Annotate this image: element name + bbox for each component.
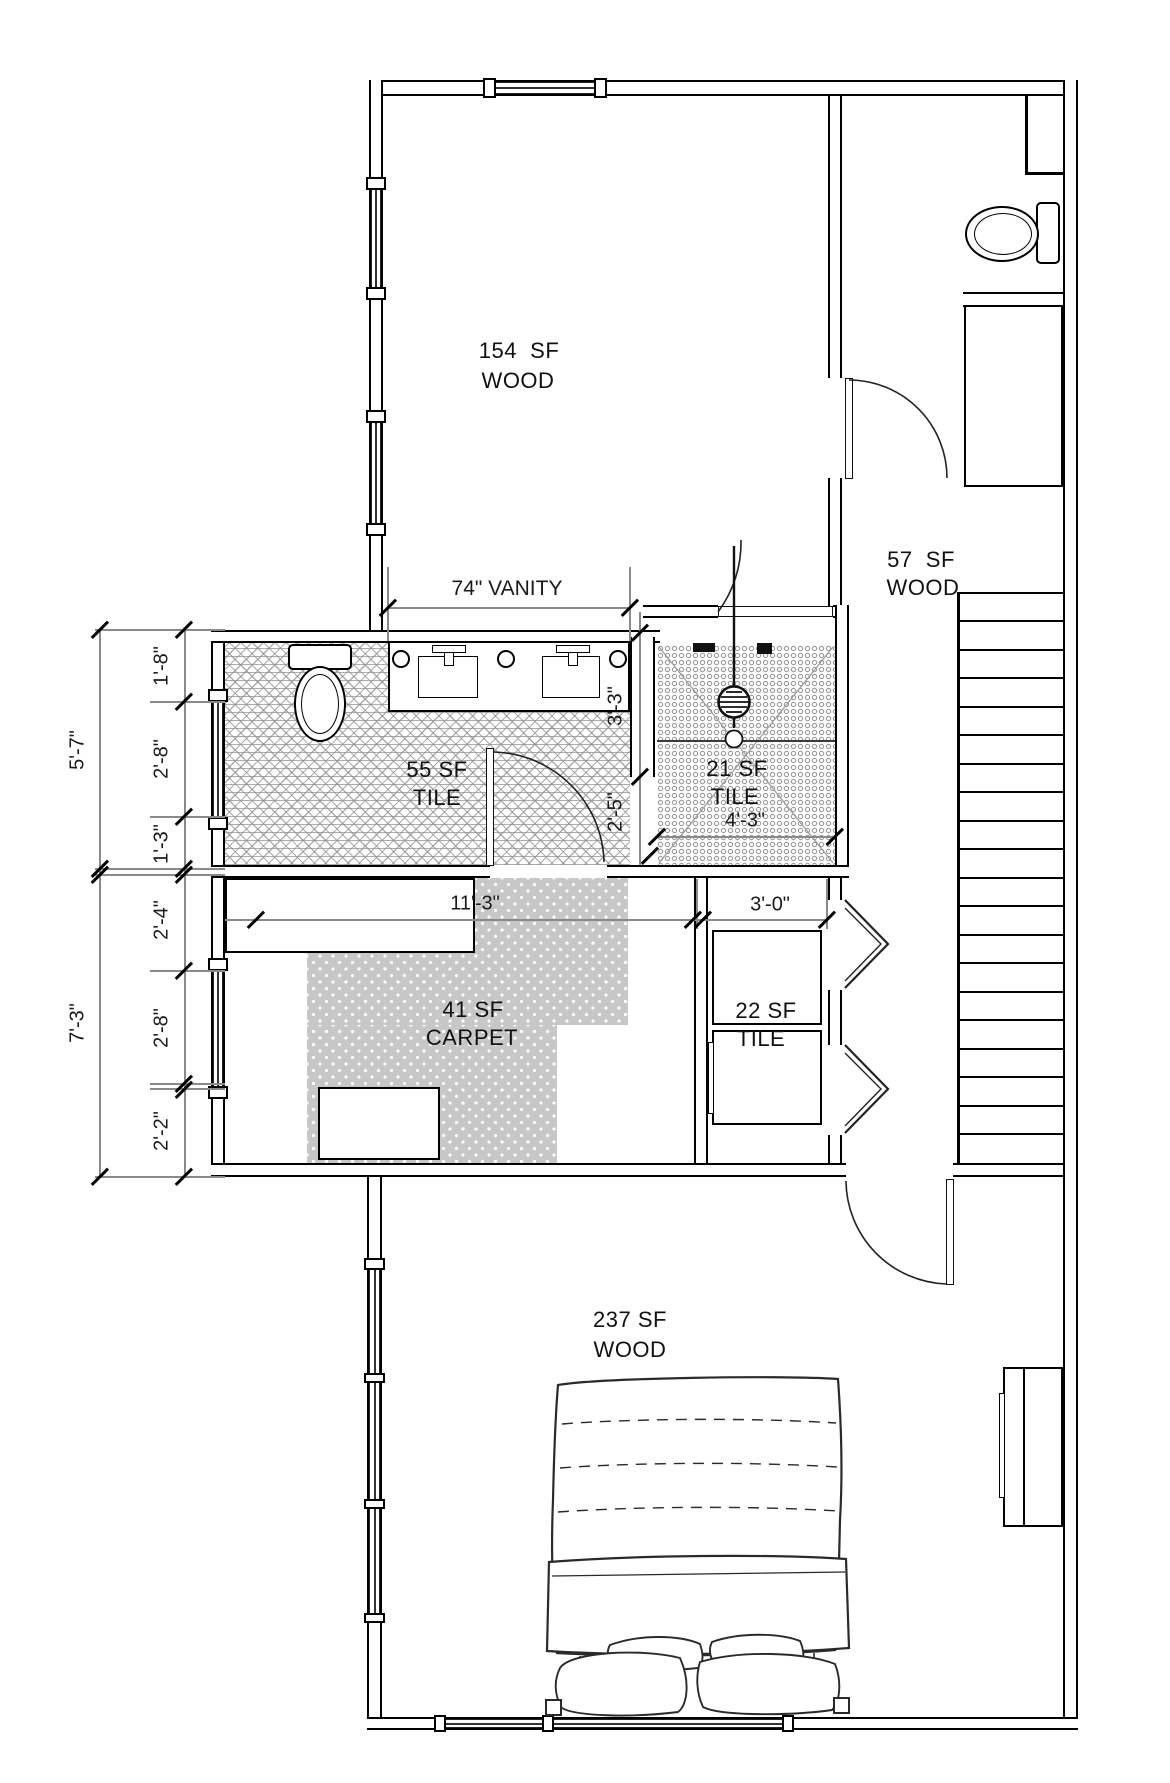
window-glass-line — [374, 1270, 376, 1373]
laundry-east-wall-a — [828, 878, 842, 900]
room-label-area: 55 SF — [406, 757, 467, 783]
bifold-door — [845, 1045, 888, 1133]
dimension-label: 7'-3" — [67, 1003, 90, 1043]
door-swing-arc — [849, 380, 947, 478]
bed-post — [834, 1698, 849, 1713]
stair-tread — [958, 820, 1063, 822]
faucet-handle — [497, 650, 515, 668]
window-sill — [364, 1373, 385, 1383]
window-sill — [208, 817, 228, 830]
window-sill — [366, 523, 386, 536]
door-swing-arc — [846, 1181, 946, 1284]
bed — [546, 1377, 849, 1715]
stair-tread — [958, 991, 1063, 993]
bathroom-south-wall-a — [211, 865, 490, 878]
window-sill — [434, 1715, 446, 1732]
room-label-floor: WOOD — [594, 1337, 667, 1363]
closet-shelf-lower — [318, 1087, 440, 1160]
sink-faucet-stub — [568, 652, 578, 666]
bifold-door — [845, 900, 888, 988]
sink-faucet-stub — [444, 652, 454, 666]
door-leaf-upper-closet — [845, 378, 853, 479]
laundry-east-wall-b — [828, 990, 842, 1045]
upper-room-divider-wall-a — [828, 96, 842, 378]
dimension-label: 2'-5" — [605, 792, 628, 832]
window-glass-line — [375, 190, 377, 287]
bed-duvet — [552, 1377, 841, 1655]
bed-pillow — [608, 1637, 703, 1670]
dresser — [1003, 1367, 1063, 1527]
bed-pillow — [697, 1654, 839, 1714]
stair-tread — [958, 649, 1063, 651]
stair-tread — [958, 677, 1063, 679]
stair-tread — [958, 905, 1063, 907]
window-sill — [364, 1613, 385, 1623]
extension-line — [95, 629, 225, 631]
window-glass-line — [553, 1723, 783, 1725]
bed-frame-side — [814, 1653, 815, 1702]
extension-line — [150, 970, 225, 972]
toilet-seat — [301, 674, 339, 734]
dimension-line — [388, 607, 630, 609]
stair-tread — [958, 1076, 1063, 1078]
bifold-door — [845, 908, 881, 981]
bathroom-east-wall — [630, 637, 655, 777]
window-sill — [366, 177, 386, 190]
window-glass-line — [374, 1509, 376, 1613]
dimension-label: 2'-8" — [151, 1008, 174, 1048]
stair-tread — [958, 1105, 1063, 1107]
shower-door-hardware — [757, 643, 772, 654]
dimension-line — [184, 630, 186, 1178]
upper-room-divider-wall-b — [828, 478, 842, 612]
stair-tread — [958, 734, 1063, 736]
extension-line — [150, 816, 225, 818]
stair-tread — [958, 1019, 1063, 1021]
window-glass-line — [375, 423, 377, 523]
dimension-line — [657, 836, 835, 838]
extension-line — [95, 868, 225, 870]
laundry-east-wall-c — [828, 1135, 842, 1163]
bed-fold-line — [558, 1507, 838, 1512]
faucet-handle — [609, 650, 627, 668]
upper-closet — [964, 305, 1063, 487]
faucet-handle — [392, 650, 410, 668]
dimension-label: 11'-3" — [450, 893, 499, 916]
dimension-line — [225, 919, 828, 921]
stair-tread — [958, 1048, 1063, 1050]
door-leaf-bedroom — [946, 1179, 954, 1285]
window-glass-line — [217, 702, 219, 817]
room-label-floor: CARPET — [426, 1025, 518, 1051]
room-label-floor: WOOD — [887, 575, 960, 601]
stair-tread — [958, 934, 1063, 936]
toilet-seat — [974, 213, 1032, 255]
window-sill — [366, 287, 386, 300]
room-label-floor: TILE — [413, 785, 461, 811]
bed-pillow — [556, 1653, 687, 1716]
laundry-cabinet-front — [708, 1042, 714, 1114]
stair-tread — [958, 706, 1063, 708]
chase-wall-horizontal — [1025, 172, 1063, 175]
stair-tread — [958, 1133, 1063, 1135]
dimension-label: 4'-3" — [725, 810, 765, 833]
dimension-label: 1'-3" — [151, 824, 174, 864]
extension-line — [95, 1176, 225, 1178]
dresser-divider — [1023, 1368, 1025, 1526]
window-glass-line — [495, 87, 595, 89]
floor-plan: 5'-7" 7'-3" 1'-8" 2'-8" 1'-3" 2'-4" 2'-8… — [0, 0, 1170, 1783]
window-sill — [483, 78, 496, 98]
hall-north-wall-a — [643, 605, 718, 618]
window-sill — [364, 1258, 385, 1270]
window-sill — [364, 1499, 385, 1509]
stair-tread — [958, 763, 1063, 765]
dimension-label: 1'-8" — [151, 646, 174, 686]
wing-south-wall-left — [211, 1163, 846, 1177]
room-label-area: 154 SF — [479, 338, 560, 364]
dimension-line — [639, 612, 641, 865]
door-swing-arc — [718, 540, 741, 612]
bathroom-north-wall — [211, 630, 660, 643]
bed-pillow — [710, 1635, 803, 1669]
stair-tread — [958, 592, 1063, 594]
dimension-label: 3'-0" — [750, 894, 790, 917]
window-sill — [782, 1715, 794, 1732]
room-label-floor: WOOD — [482, 368, 555, 394]
toilet-tank — [1036, 202, 1060, 264]
chase-wall-vertical — [1025, 96, 1028, 175]
window-glass-line — [217, 971, 219, 1086]
bed-fold-line — [560, 1463, 837, 1468]
window-glass-line — [374, 1383, 376, 1499]
room-label-area: 57 SF — [887, 547, 955, 573]
stair-tread — [958, 877, 1063, 879]
window-glass-line — [445, 1723, 543, 1725]
dresser-front — [999, 1393, 1005, 1498]
exterior-wall-right — [1063, 80, 1078, 1730]
bathroom-south-wall-b — [607, 865, 849, 878]
stair-tread — [958, 848, 1063, 850]
room-label-area: 22 SF — [735, 998, 796, 1024]
room-label-area: 41 SF — [442, 997, 503, 1023]
door-leaf-hall — [718, 606, 833, 617]
dimension-label: 5'-7" — [67, 730, 90, 770]
exterior-wall-left-upper — [369, 80, 383, 637]
bed-post — [546, 1700, 561, 1715]
bifold-door — [845, 1053, 881, 1126]
door-leaf-bathroom — [486, 748, 494, 866]
dimension-label: 74" VANITY — [452, 577, 563, 601]
window-sill — [366, 410, 386, 423]
exterior-wall-top — [369, 80, 1078, 96]
bed-frame-side — [580, 1656, 581, 1704]
window-sill — [542, 1715, 554, 1732]
extension-line — [95, 874, 225, 876]
stair-tread — [958, 962, 1063, 964]
dimension-label: 3'-3" — [605, 686, 628, 726]
wing-south-wall-right — [953, 1163, 1063, 1177]
bed-sheet — [547, 1556, 849, 1654]
stair-tread — [958, 620, 1063, 622]
extension-line — [150, 701, 225, 703]
shower-door-hardware — [693, 643, 715, 652]
room-label-area: 237 SF — [593, 1307, 667, 1333]
room-label-floor: TILE — [711, 784, 759, 810]
dimension-label: 2'-8" — [151, 739, 174, 779]
dimension-label: 2'-4" — [151, 900, 174, 940]
dimension-label: 2'-2" — [151, 1111, 174, 1151]
room-label-area: 21 SF — [706, 756, 767, 782]
dimension-line — [99, 630, 101, 1178]
bed-fold-line — [562, 1419, 836, 1424]
window-sill — [594, 78, 607, 98]
room-label-floor: TILE — [737, 1026, 785, 1052]
bed-sheet-fold — [552, 1572, 845, 1576]
stair-tread — [958, 791, 1063, 793]
